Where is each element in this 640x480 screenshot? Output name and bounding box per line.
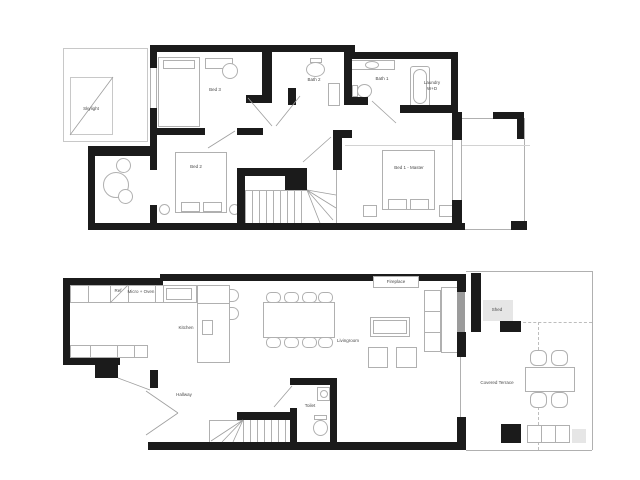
dining-chair <box>302 337 317 348</box>
cabinet-divider <box>90 346 91 357</box>
terrace-storage-wall <box>471 273 481 332</box>
stair-winder-line <box>307 190 336 195</box>
wall-segment <box>400 105 458 113</box>
ottoman <box>368 347 388 368</box>
terrace-block <box>500 321 521 332</box>
wall-segment <box>88 146 157 156</box>
room-label-livingroom: Livingroom <box>337 339 359 344</box>
terrace-top-line <box>466 271 592 272</box>
glass-opening-line <box>460 357 461 417</box>
floor-plan-canvas: Skylight Bed 3 Bath 2 Bath 1 Laundry W+D… <box>0 0 640 480</box>
fireplace-label: Fireplace <box>387 280 406 285</box>
wall-segment <box>452 112 462 140</box>
bed3-chair <box>222 63 238 79</box>
terrace-chair <box>551 350 568 366</box>
room-label-bed2: Bed 2 <box>190 165 202 170</box>
door-swing-line <box>146 413 178 435</box>
wall-segment <box>457 274 466 292</box>
stair-winder-line <box>307 190 320 223</box>
sofa-cushion-line <box>424 311 441 312</box>
wall-segment <box>333 130 352 138</box>
stair-edge-lower <box>209 420 243 421</box>
wall-segment <box>148 442 463 450</box>
stairs-lower-treads <box>243 420 290 442</box>
wall-segment <box>457 332 466 357</box>
stair-right-line-upper <box>336 168 337 223</box>
stair-wall-lower <box>237 412 293 420</box>
bench-divider <box>555 426 556 442</box>
wall-segment <box>150 152 157 170</box>
door-swing-line <box>274 386 292 407</box>
sliding-glass-door <box>457 292 465 332</box>
bar-stool <box>230 307 239 320</box>
island-sink <box>202 320 213 335</box>
room-label-kitchen: Kitchen <box>178 326 193 331</box>
wall-segment <box>451 52 458 112</box>
toilet-bowl <box>313 420 328 436</box>
stair-winder-line <box>307 190 333 220</box>
balcony-corner-wall <box>511 221 527 230</box>
sofa-cushion-line <box>424 332 441 333</box>
door-swing-line <box>146 391 178 413</box>
balcony-corner-wall <box>517 112 524 139</box>
room-label-toilet: Toilet <box>305 404 316 409</box>
bed2-nightstand <box>159 204 170 215</box>
wall-segment <box>150 205 157 223</box>
room-label-laundry: W+D <box>427 87 437 92</box>
coffee-table-inner <box>373 320 407 334</box>
room-label-bed3: Bed 3 <box>209 88 221 93</box>
ottoman <box>396 347 417 368</box>
room-label-hallway: Hallway <box>176 393 192 398</box>
sitting-chair <box>116 158 131 173</box>
bed2-pillow <box>203 202 222 212</box>
terrace-chair <box>551 392 568 408</box>
room-label-bath2: Bath 2 <box>307 78 320 83</box>
stair-winder-line <box>307 190 336 208</box>
cabinet-divider <box>155 286 156 302</box>
stair-landing-block <box>285 168 307 190</box>
wall-segment <box>88 223 465 230</box>
dining-chair <box>266 337 281 348</box>
toilet-sink-basin <box>320 390 328 398</box>
door-swing-line <box>208 131 235 148</box>
master-pillow <box>410 199 429 210</box>
toilet-wall <box>330 378 337 443</box>
terrace-bench <box>527 425 570 443</box>
wall-segment <box>150 370 158 388</box>
wall-segment <box>63 358 120 365</box>
kitchen-counter-bottom <box>70 345 148 358</box>
bench-divider <box>541 426 542 442</box>
wall-segment <box>237 128 263 135</box>
cabinet-label-ref: Ref <box>114 289 121 294</box>
bar-stool <box>230 289 239 302</box>
cabinet-divider <box>163 286 164 302</box>
wall-segment <box>262 45 272 97</box>
wall-segment <box>63 278 70 365</box>
covered-zone-dashed-line <box>513 322 592 323</box>
terrace-chair <box>530 350 547 366</box>
wall-segment <box>63 278 163 285</box>
door-swing-line <box>372 101 396 123</box>
master-dressing-line <box>345 145 530 146</box>
bed3-pillow <box>163 60 195 69</box>
entry-wall-block <box>95 365 118 378</box>
wall-segment <box>150 128 205 135</box>
master-pillow <box>388 199 407 210</box>
cabinet-divider <box>117 346 118 357</box>
cabinet-divider <box>134 346 135 357</box>
terrace-right-line <box>592 271 593 450</box>
bed2-pillow <box>181 202 200 212</box>
wall-segment <box>150 45 355 52</box>
room-label-bath1: Bath 1 <box>375 77 388 82</box>
room-label-covered-terrace: Covered Terrace <box>480 381 513 386</box>
master-nightstand <box>363 205 377 217</box>
terrace-bottom-line <box>466 450 592 451</box>
sitting-chair <box>118 189 133 204</box>
balcony-right-line <box>524 118 525 230</box>
stair-winder-line <box>211 420 243 441</box>
dining-chair <box>318 337 333 348</box>
terrace-block <box>501 424 521 443</box>
bathtub-inner <box>413 69 427 104</box>
island-divider <box>198 303 229 304</box>
stairs-upper-treads <box>245 191 307 223</box>
terrace-planter <box>572 429 586 443</box>
wall-segment <box>88 146 95 230</box>
cabinet-divider <box>88 286 89 302</box>
bath1-basin <box>365 61 379 69</box>
bed3-window <box>150 68 157 108</box>
room-label-skylight: Skylight <box>83 107 99 112</box>
bath1-toilet-bowl <box>357 84 372 98</box>
cabinet-label-micro-oven: Micro + Oven <box>128 290 155 295</box>
terrace-chair <box>530 392 547 408</box>
stair-winder-line <box>222 420 243 442</box>
wall-segment <box>288 88 296 105</box>
entry-angled-wall-line <box>118 378 150 390</box>
dining-table <box>263 302 335 338</box>
room-label-bed1-master: Bed 1 - Master <box>394 166 424 171</box>
cabinet-divider <box>110 286 111 302</box>
bath2-toilet-bowl <box>306 62 325 77</box>
wall-segment <box>452 200 462 223</box>
cooktop <box>166 288 192 300</box>
door-swing-line <box>303 137 331 162</box>
master-nightstand <box>439 205 453 217</box>
wall-segment <box>246 95 272 103</box>
sofa-seats <box>424 290 441 352</box>
shed-label: Shed <box>492 308 503 313</box>
terrace-table <box>525 367 575 392</box>
wall-segment <box>457 417 466 450</box>
master-window <box>452 140 462 200</box>
room-label-laundry: Laundry <box>424 81 440 86</box>
wall-segment <box>352 52 458 59</box>
dining-chair <box>284 337 299 348</box>
wall-segment <box>344 97 368 105</box>
stair-wall-upper <box>237 168 245 223</box>
bath2-vanity <box>328 83 340 106</box>
stair-winder-line <box>233 420 243 442</box>
stair-left-line-lower <box>209 420 210 442</box>
